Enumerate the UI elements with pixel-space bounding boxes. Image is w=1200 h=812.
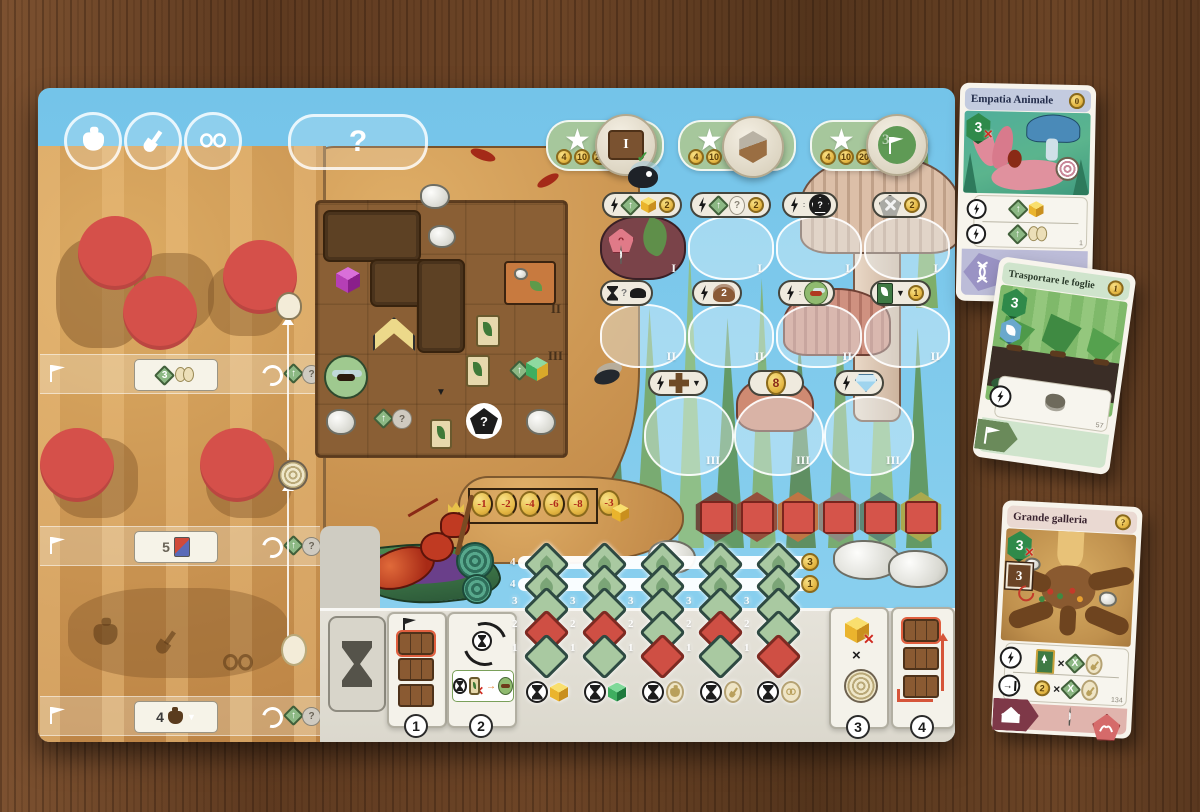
hex-value: 3	[1010, 294, 1020, 311]
excavated-area[interactable]	[323, 210, 421, 262]
legend-help-button[interactable]: ?	[288, 114, 428, 170]
hex-space-6	[899, 492, 943, 542]
bonus-slot-r2c2[interactable]: II 2	[686, 280, 772, 364]
slot-bubble[interactable]: II	[864, 304, 950, 368]
down-arrow-icon: ▼	[436, 387, 446, 398]
red-arrowhead-up	[938, 633, 948, 641]
stone	[526, 409, 556, 435]
card-coin-value: 0	[1069, 93, 1085, 109]
slot-header: ↑ 2	[602, 192, 682, 218]
flag-arrow-banner	[974, 419, 1020, 455]
card-grande-galleria[interactable]: Grande galleria ? 3 ✕ 3 × X → 2 × X	[991, 500, 1143, 739]
slot-bubble[interactable]: III	[734, 396, 824, 476]
flag-icon	[983, 426, 1002, 445]
ant-icon	[810, 291, 822, 296]
coil-track-marker[interactable]	[278, 460, 308, 490]
slot-numeral: II	[667, 349, 676, 364]
flag-icon	[889, 137, 906, 154]
square-value: 3	[1015, 568, 1022, 584]
lightning-circle-icon	[999, 646, 1022, 669]
card-row-slot	[398, 658, 434, 681]
slot-header: 2	[872, 192, 927, 218]
stone	[428, 225, 456, 248]
red-square-tile[interactable]	[700, 501, 733, 534]
tunnel-arm	[1059, 605, 1077, 636]
orange-arrow-icon: →	[486, 681, 496, 692]
leaf-card[interactable]	[430, 419, 452, 449]
binoculars-icon	[200, 133, 226, 149]
slot-header: ∶	[778, 280, 835, 306]
green-yellow-cube-token[interactable]	[526, 357, 548, 381]
slot-numeral: II	[931, 349, 940, 364]
tunnel-arm	[1006, 599, 1055, 631]
hex-space-5	[858, 492, 902, 542]
purple-cube-token[interactable]	[336, 267, 360, 293]
slot-numeral: I	[671, 261, 676, 276]
gray-pentagon-tools-icon	[879, 195, 901, 216]
track-label-4: 4	[510, 556, 516, 568]
card-bottom-band	[996, 702, 1127, 735]
unknown-coin-icon: ?	[302, 707, 321, 726]
stone-leaf-icon	[1044, 393, 1066, 410]
slot-numeral: III	[796, 453, 810, 468]
lightning-icon	[697, 197, 708, 213]
red-square-tile[interactable]	[741, 501, 774, 534]
band-coin: 1	[801, 575, 819, 593]
green-arrow-diamond-icon: ↑	[708, 194, 729, 215]
band-value: 4	[156, 709, 164, 725]
red-cross-icon: ✕	[983, 127, 993, 141]
card-coin-value: ?	[1115, 514, 1132, 531]
slot-header	[834, 370, 884, 396]
action-section-2[interactable]: ✕ → 2	[447, 612, 517, 728]
section-number: 3	[846, 715, 870, 739]
card-icon	[174, 537, 190, 557]
card-row-slot	[903, 675, 939, 698]
action-section-1[interactable]: 1	[387, 612, 447, 728]
action-section-4[interactable]: 4	[891, 607, 955, 729]
diamond-column-5: 3 2 1	[756, 543, 802, 721]
card-ability-panel: ↑ ↑ 1	[973, 195, 1088, 249]
tunnel-hex-icon	[738, 131, 768, 163]
card-row-slot	[903, 647, 939, 670]
eight-badge: 8	[766, 371, 786, 395]
hourglass-icon	[607, 286, 618, 301]
bonus-slot-r2c3[interactable]: II ∶	[774, 280, 860, 364]
band-reward-pill[interactable]: 4 ▼	[134, 701, 218, 733]
queen-crown	[448, 502, 464, 512]
hourglass-relief	[328, 616, 386, 712]
occupied-tile[interactable]: ᴖ I	[600, 216, 686, 280]
slot-numeral: III	[886, 453, 900, 468]
mult-coin: 2	[1034, 679, 1051, 696]
section-number: 2	[469, 714, 493, 738]
track-label-4b: 4	[510, 578, 516, 590]
stone	[1099, 591, 1118, 607]
stone-pile	[888, 550, 948, 588]
bonus-slot-r1c3[interactable]: I ∶ ?	[774, 192, 860, 276]
bonus-slot-r2c1[interactable]: II ?	[598, 280, 684, 364]
dirt-tile[interactable]	[504, 261, 556, 305]
rotate-icon	[258, 361, 287, 390]
cost-dots: ∶	[799, 289, 801, 298]
red-square-tile[interactable]	[782, 501, 815, 534]
photo-of-board-game-table: { "icons": {"question":"?","star":"★","u…	[0, 0, 1200, 812]
lightning-icon	[699, 285, 710, 301]
flag-disc-icon: 3	[878, 126, 916, 164]
band-value: 3	[162, 370, 168, 381]
left-band-1: 3 ↑ ?	[40, 354, 320, 394]
tunnel-arm	[1082, 603, 1131, 638]
card-trasportare-le-foglie[interactable]: Trasportare le foglie 1 3 57	[972, 256, 1137, 475]
slot-coin: 1	[908, 285, 924, 301]
black-disc-icon: ?	[809, 194, 831, 216]
dig-grid: II III ▼ ↑ ↑ ? ?	[315, 200, 568, 458]
card-number: 1	[1079, 240, 1083, 247]
score-coin: 10	[706, 149, 722, 165]
red-circle-token[interactable]	[123, 276, 197, 350]
slot-bubble[interactable]: I	[776, 216, 862, 280]
bonus-slot-r3c1[interactable]: III ▼	[642, 370, 732, 474]
flag-icon	[50, 365, 67, 382]
card-ability-panel: × X → 2 × X 134	[1003, 642, 1130, 706]
lightning-icon	[655, 375, 666, 391]
flag-icon	[50, 537, 67, 554]
hex-space-4	[817, 492, 861, 542]
hourglass-icon	[342, 641, 372, 687]
green-arrow-diamond-icon: ↑	[620, 194, 641, 215]
hourglass-circle-icon	[472, 631, 492, 651]
down-arrow-icon: ▼	[187, 712, 196, 722]
excavated-area-l-stem[interactable]	[417, 259, 465, 353]
track-line-lower	[287, 486, 289, 638]
flag-icon	[50, 707, 67, 724]
bonus-slot-r2c4[interactable]: II ▼ 1	[862, 280, 948, 364]
section-number: 1	[404, 714, 428, 738]
bonus-slot-r1c2[interactable]: I ↑ ? 2	[686, 192, 772, 276]
cost-dots: ∶	[803, 201, 806, 210]
legend-binoculars-button[interactable]	[184, 112, 242, 170]
times-symbol: ×	[1053, 681, 1061, 695]
green-disc-ant-icon	[804, 281, 828, 305]
slot-bubble[interactable]: I	[688, 216, 774, 280]
red-pentagon-mandible-icon	[1092, 713, 1121, 741]
times-symbol: ×	[852, 647, 861, 664]
leaf-decor	[963, 153, 978, 193]
bag-shadow-icon	[94, 624, 118, 645]
yellow-cube-icon	[641, 197, 656, 213]
cross-tunnel-icon	[669, 373, 689, 393]
lightning-icon	[609, 197, 620, 213]
home-icon	[1000, 706, 1021, 723]
score-coin: 10	[838, 149, 854, 165]
dna-icon	[972, 260, 992, 284]
red-circle-token[interactable]	[200, 428, 274, 502]
spiral-decor	[1055, 157, 1079, 181]
shovel-icon	[136, 124, 169, 157]
card-title: Empatia Animale	[971, 93, 1053, 107]
band-coin: 3	[801, 553, 819, 571]
slot-bubble[interactable]: I	[864, 216, 950, 280]
slot-header: 2	[692, 280, 742, 306]
down-arrow-icon: ▼	[896, 288, 905, 298]
diamond-column-4: 3 2 1	[698, 543, 744, 721]
mantis-art	[636, 216, 674, 258]
check-icon: ✓	[636, 148, 649, 166]
slot-header: ∶ ?	[782, 192, 838, 218]
slot-header: ▼	[648, 370, 708, 396]
card-row-slot	[398, 684, 434, 707]
stone	[514, 268, 528, 280]
bonus-slot-r3c2[interactable]: III 8	[732, 370, 822, 474]
penalty-badge: -8	[567, 491, 589, 517]
red-cross-icon: ✕	[863, 631, 875, 648]
mandible-icon	[1098, 721, 1115, 734]
penalty-badge: -6	[543, 491, 565, 517]
card-number: 134	[1111, 697, 1123, 705]
beetle-decor	[628, 166, 658, 188]
beetle-eye	[646, 171, 652, 177]
diamond-column-2: 3 2 1	[582, 543, 628, 721]
lightning-circle-icon	[966, 199, 986, 219]
divider	[982, 221, 1078, 224]
green-arrow-diamond-icon: ↑	[283, 705, 304, 726]
slot-bubble[interactable]: III	[824, 396, 914, 476]
slot-numeral: III	[706, 453, 720, 468]
track-line-upper	[287, 320, 289, 460]
slot-coin: 2	[904, 197, 920, 213]
slot-coin: 2	[659, 197, 675, 213]
watcher-count: 2	[721, 288, 727, 299]
hex-value: 3	[1015, 537, 1024, 553]
rotate-icon	[258, 533, 287, 562]
slot-numeral: II	[755, 349, 764, 364]
bonus-slot-r1c1[interactable]: ᴖ I ↑ 2	[598, 192, 684, 276]
red-arrow-corner	[897, 689, 900, 702]
bag-icon	[83, 132, 104, 150]
main-game-board: 3 ↑ ? 5 ↑ ? 4 ▼ ↑ ? ?	[38, 88, 955, 742]
unknown-coin-icon: ?	[392, 409, 412, 429]
ant-icon	[337, 374, 355, 381]
leaf-card-stack-back[interactable]	[476, 315, 500, 347]
oval-track-marker[interactable]	[281, 634, 307, 666]
ant-track-marker[interactable]	[276, 292, 302, 320]
band-reward-pill[interactable]: 3	[134, 359, 218, 391]
watcher-badge-icon: 2	[713, 284, 735, 302]
slot-bubble[interactable]: II	[776, 304, 862, 368]
score-coin: 4	[688, 149, 704, 165]
slot-header: ↑ ? 2	[690, 192, 771, 218]
bonus-slot-r1c4[interactable]: I 2	[862, 192, 948, 276]
card-header: Empatia Animale 0	[965, 88, 1091, 113]
leaf-card-icon	[877, 283, 893, 304]
slot-header: ?	[600, 280, 653, 306]
red-circle-token[interactable]	[78, 216, 152, 290]
slot-bubble[interactable]: II	[600, 304, 686, 368]
blue-mushroom-stem	[1046, 138, 1058, 160]
red-square-tile[interactable]	[905, 501, 938, 534]
red-square-tile[interactable]	[823, 501, 856, 534]
card-number: 57	[1095, 422, 1104, 430]
winged-ant-disc[interactable]	[324, 355, 368, 399]
slot-numeral: I	[933, 261, 938, 276]
band-reward-pill[interactable]: 5	[134, 531, 218, 563]
green-diamond-icon: 3	[154, 364, 175, 385]
slot-numeral: II	[843, 349, 852, 364]
slot-header: ▼ 1	[870, 280, 931, 306]
pentagon-question-icon: ?	[812, 197, 829, 213]
card-coin-value: 1	[1107, 279, 1125, 297]
chevron-marker[interactable]	[373, 317, 415, 351]
diamond-column-1: 3 2 1	[524, 543, 570, 721]
score-coin: 4	[820, 149, 836, 165]
unknown-coin-icon: ?	[302, 537, 321, 556]
green-arrow-diamond-icon: ↑	[373, 408, 394, 429]
bonus-slot-r3c3[interactable]: III	[822, 370, 912, 474]
rotate-icon	[258, 703, 287, 732]
lightning-icon	[841, 375, 852, 391]
card-row-slot-top	[903, 619, 939, 642]
question-icon: ?	[349, 125, 367, 159]
grid-numeral-ii: II	[551, 301, 561, 317]
times-symbol: ×	[1057, 656, 1065, 670]
lightning-icon	[785, 285, 796, 301]
mystery-pentagon-disc[interactable]: ?	[466, 403, 502, 439]
score-coin: 10	[574, 149, 590, 165]
lightning-circle-icon	[966, 224, 986, 244]
enter-circle-icon: →	[998, 674, 1021, 697]
slot-numeral: I	[845, 261, 850, 276]
red-arrow-bottom	[899, 699, 933, 702]
binoculars-shadow-icon	[223, 654, 253, 672]
score-coin: 4	[556, 149, 572, 165]
lightning-circle-icon	[988, 384, 1013, 409]
red-arrow-line	[941, 639, 944, 691]
eggs-icon	[175, 367, 195, 383]
slot-coin: 2	[748, 197, 764, 213]
slot-header: 8	[748, 370, 804, 396]
leaf-card-stack-front[interactable]	[466, 355, 490, 387]
gray-pentagon-tools-icon	[1068, 707, 1071, 726]
card-title: Grande galleria	[1013, 511, 1088, 527]
red-circle-token[interactable]	[40, 428, 114, 502]
stone	[420, 184, 450, 209]
refresh-cost-panel: ✕ →	[452, 670, 514, 702]
down-arrow-icon: ▼	[692, 378, 701, 388]
card-row-slot-top	[398, 632, 434, 655]
red-cross-icon: ✕	[1024, 545, 1035, 560]
bag-icon	[168, 711, 183, 724]
snail-swirl	[462, 574, 492, 604]
lightning-icon	[789, 197, 800, 213]
queen-antenna	[408, 498, 439, 518]
score-disc-flags[interactable]: 3	[866, 114, 928, 176]
slot-numeral: I	[757, 261, 762, 276]
tunnel-arm	[1087, 566, 1136, 592]
pentagon-icon: ?	[470, 408, 498, 434]
grid-numeral-iii: III	[548, 348, 563, 364]
question-small: ?	[621, 288, 627, 299]
penalty-badge: -4	[519, 491, 541, 517]
left-band-2: 5 ↑ ?	[40, 526, 320, 566]
score-disc-tunnels[interactable]	[722, 116, 784, 178]
legend-shovel-button[interactable]	[124, 112, 182, 170]
slot-bubble[interactable]: III	[644, 396, 734, 476]
gem-icon	[855, 374, 877, 392]
light-shaft	[1057, 531, 1085, 568]
leaf	[530, 281, 542, 291]
red-square-tile[interactable]	[864, 501, 897, 534]
any-card-icon: ?	[729, 196, 745, 215]
legend-bag-button[interactable]	[64, 112, 122, 170]
diamond-column-3: 3 2 1	[640, 543, 686, 721]
slot-bubble[interactable]: II	[688, 304, 774, 368]
band-value: 5	[162, 539, 170, 555]
left-band-3: 4 ▼ ↑ ?	[40, 696, 320, 736]
stone	[326, 409, 356, 435]
mound-icon	[630, 288, 646, 298]
hex-value: 3	[974, 119, 982, 135]
home-arrow-banner	[992, 698, 1040, 732]
action-section-3[interactable]: ✕ × 3	[829, 607, 889, 729]
coil-icon	[844, 669, 878, 703]
section-number: 4	[910, 715, 934, 739]
tree-card-icon	[1035, 649, 1055, 675]
